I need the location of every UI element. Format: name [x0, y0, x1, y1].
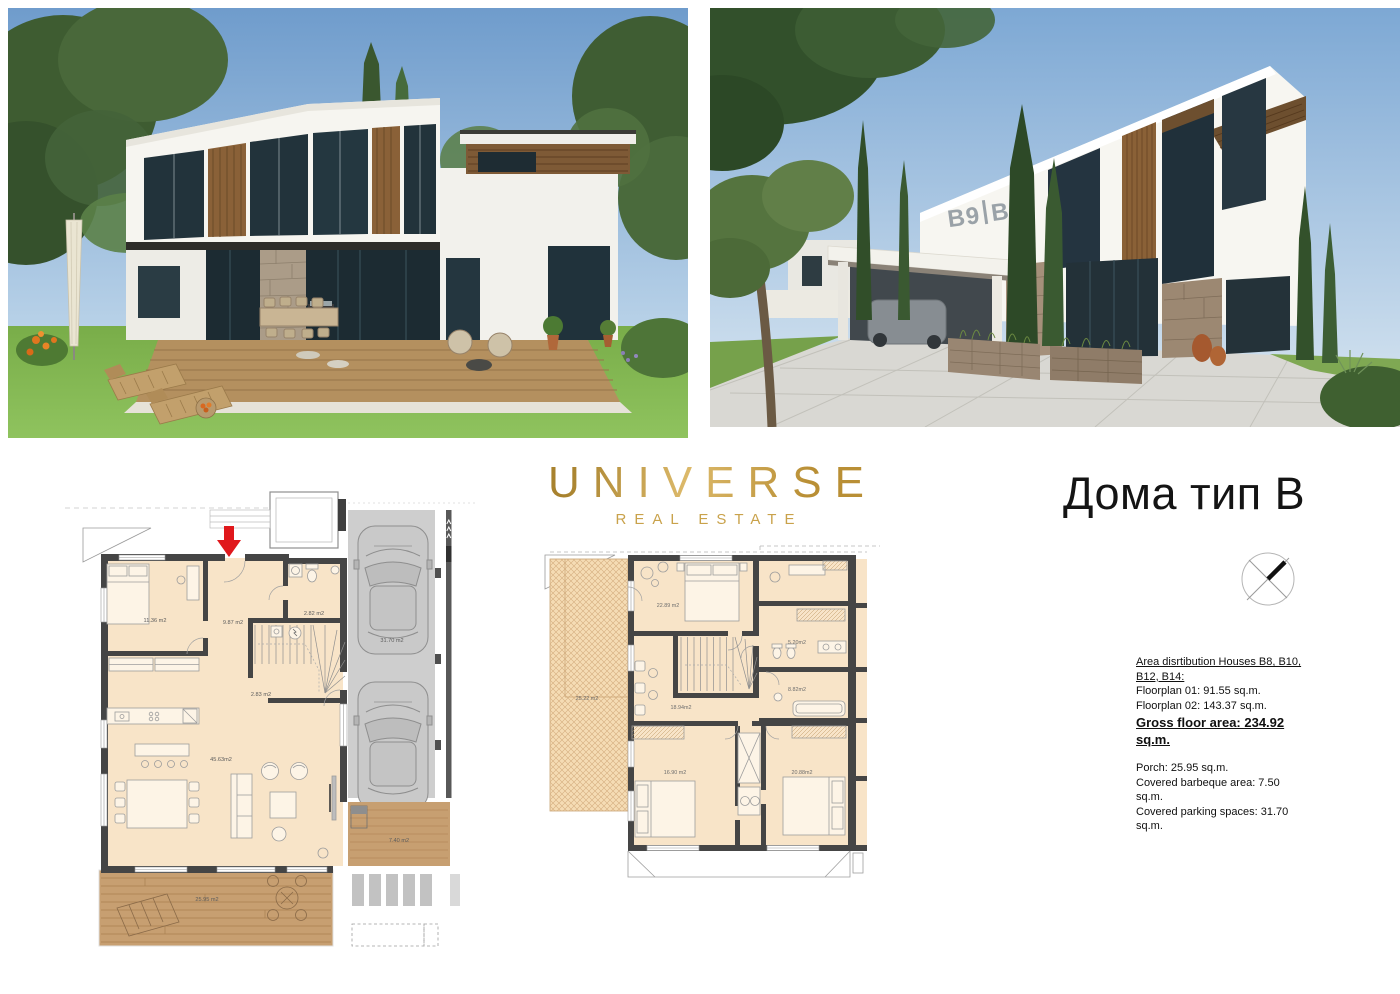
- room-area-label: 45.63m2: [210, 757, 232, 763]
- area-info-line: Floorplan 02: 143.37 sq.m.: [1136, 699, 1306, 714]
- page-title: Дома тип B: [1063, 468, 1305, 520]
- render-street-view: B9 B8: [710, 8, 1400, 427]
- parking-lane: 31.70 m2: [348, 510, 452, 810]
- facade-sign-b9: B9: [946, 202, 982, 233]
- driveway-stripes: [352, 874, 460, 906]
- room-area-label: 20.88m2: [792, 770, 813, 776]
- room-area-label: 16.90 m2: [664, 770, 686, 776]
- room-area-label: 25.22 m2: [576, 696, 598, 702]
- brand-logo-title: UNIVERSE: [535, 458, 875, 508]
- room-area-label: 18.94m2: [671, 705, 692, 711]
- render-garden-view: [8, 8, 688, 438]
- carport: [828, 246, 1012, 349]
- room-area-label: 9.87 m2: [223, 620, 243, 626]
- brand-logo-subtitle: REAL ESTATE: [535, 511, 875, 528]
- room-area-label: 31.70 m2: [380, 638, 403, 644]
- area-info-heading: Area disrtibution Houses B8, B10, B12, B…: [1136, 655, 1306, 684]
- area-info-line: Floorplan 01: 91.55 sq.m.: [1136, 684, 1306, 699]
- floorplan-02: 25.22 m2: [535, 545, 880, 985]
- room-area-label: 7.40 m2: [389, 838, 409, 844]
- entrance-arrow-icon: [217, 526, 241, 557]
- gross-floor-area: Gross floor area: 234.92 sq.m.: [1136, 714, 1306, 748]
- room-area-label: 22.89 m2: [657, 603, 679, 609]
- rear-deck: 25.95 m2: [99, 870, 333, 946]
- area-info-line: Covered barbeque area: 7.50 sq.m.: [1136, 776, 1306, 805]
- area-info-block: Area disrtibution Houses B8, B10, B12, B…: [1136, 655, 1306, 834]
- room-area-label: 11.36 m2: [144, 618, 167, 624]
- room-area-label: 2.82 m2: [304, 611, 324, 617]
- balcony-outline: [628, 851, 863, 877]
- brand-logo: UNIVERSE REAL ESTATE: [535, 458, 875, 528]
- terrace: 25.22 m2: [550, 559, 628, 811]
- area-info-line: Porch: 25.95 sq.m.: [1136, 761, 1306, 776]
- room-area-label: 25.95 m2: [195, 897, 218, 903]
- room-area-label: 2.83 m2: [251, 692, 271, 698]
- side-deck: 7.40 m2: [348, 802, 450, 866]
- north-arrow-icon: [1239, 550, 1297, 608]
- house: [126, 98, 636, 340]
- room-area-label: 8.82m2: [788, 687, 806, 693]
- setback-dashed: [352, 924, 438, 946]
- area-info-line: Covered parking spaces: 31.70 sq.m.: [1136, 805, 1306, 834]
- roof-dashed-lines: [550, 546, 880, 552]
- floorplan-01: 31.70 m2 25.95 m2 7.40 m2: [55, 468, 475, 988]
- room-area-label: 5.20m2: [788, 640, 806, 646]
